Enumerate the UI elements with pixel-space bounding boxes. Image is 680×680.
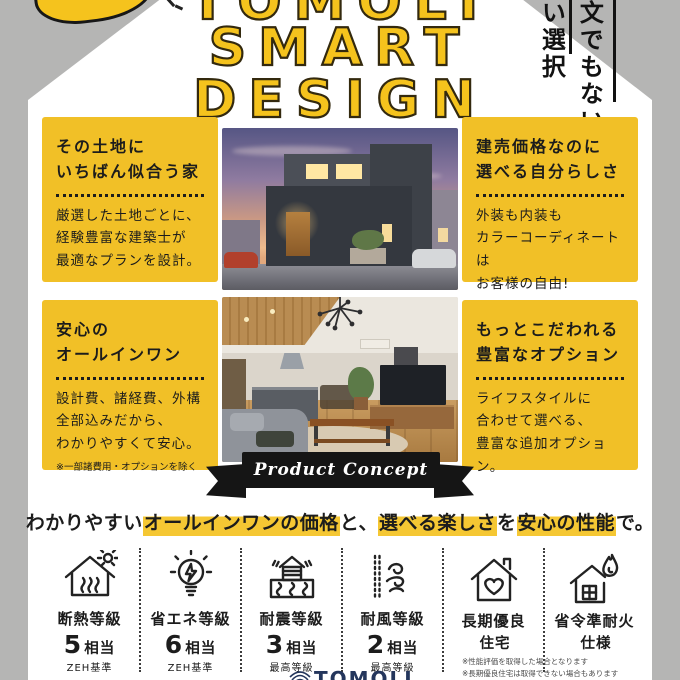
vertical-phrase-right: 文でもない — [576, 0, 602, 135]
flyer-poster: TOMOLI SMART DESIGN 文でもない い選択 その土地に いちばん… — [0, 0, 680, 680]
tagline: わかりやすいオールインワンの価格と、選べる楽しさを安心の性能で。 — [0, 508, 680, 535]
indoor-plant — [348, 367, 374, 401]
spec-label: 省エネ等級 — [150, 608, 230, 629]
feature-title-line: 豊富なオプション — [476, 343, 626, 368]
dotted-divider — [56, 377, 204, 380]
spec-energy: 省エネ等級 6 相当 ZEH基準 — [139, 548, 240, 672]
downlight — [244, 317, 249, 322]
spec-earthquake: 耐震等級 3 相当 最高等級 — [240, 548, 341, 672]
feature-body-line: 最適なプランを設計。 — [56, 250, 206, 273]
product-concept-ribbon: Product Concept — [242, 452, 440, 488]
spec-grade-unit: 相当 — [387, 637, 418, 658]
performance-specs-row: 断熱等級 5 相当 ZEH基準 省エネ等級 6 相当 ZEH基準 — [40, 548, 644, 672]
insulation-house-icon — [62, 550, 118, 606]
spec-grade-unit: 相当 — [84, 637, 115, 658]
feature-footnote: ※一部諸費用・オプションを除く — [56, 459, 206, 473]
wood-front-door — [286, 212, 310, 256]
tagline-segment: と、 — [340, 512, 378, 534]
sofa-cushion — [230, 413, 264, 431]
feature-body-line: 合わせて選べる、 — [476, 410, 626, 433]
spec-grade-unit: 相当 — [185, 637, 216, 658]
downlight — [270, 309, 275, 314]
heart-house-icon — [466, 550, 522, 608]
feature-title-line: もっとこだわれる — [476, 318, 626, 343]
feature-box-options: もっとこだわれる 豊富なオプション ライフスタイルに 合わせて選べる、 豊富な追… — [462, 300, 638, 470]
spec-grade-number: 2 — [367, 630, 384, 659]
exterior-photo — [222, 128, 458, 290]
energy-saving-bulb-icon — [163, 550, 219, 606]
spec-grade-number: 5 — [64, 630, 81, 659]
spec-label: 断熱等級 — [57, 608, 121, 629]
dotted-divider — [476, 377, 624, 380]
footnote-line: ※性能評価を取得した場合となります — [462, 656, 652, 668]
coffee-table-shelf — [314, 439, 390, 443]
spec-grade-unit: 仕様 — [581, 632, 612, 653]
feature-title-line: いちばん似合う家 — [56, 160, 206, 185]
spec-label: 耐震等級 — [259, 608, 323, 629]
feature-title-line: その土地に — [56, 135, 206, 160]
lit-window — [336, 164, 362, 179]
spec-grade-number: 3 — [266, 630, 283, 659]
dotted-divider — [476, 194, 624, 197]
vertical-phrase-left: い選択 — [538, 0, 564, 81]
earthquake-resistance-icon — [264, 550, 320, 606]
spec-grade-number: 6 — [165, 630, 182, 659]
spec-wind: 耐風等級 2 相当 最高等級 — [341, 548, 442, 672]
feature-box-all-in-one: 安心の オールインワン 設計費、諸経費、外構 全部込みだから、 わかりやすくて安… — [42, 300, 218, 470]
tagline-segment: わかりやすい — [26, 512, 143, 534]
red-car — [224, 252, 258, 268]
spec-grade-unit: 住宅 — [480, 632, 511, 653]
feature-body-line: お客様の自由! — [476, 273, 626, 296]
vertical-rule — [569, 0, 572, 54]
spec-grade-unit: 相当 — [286, 637, 317, 658]
feature-box-land-fit: その土地に いちばん似合う家 厳選した土地ごとに、 経験豊富な建築士が 最適なプ… — [42, 117, 218, 282]
tagline-segment: で。 — [616, 512, 654, 534]
sputnik-chandelier-icon — [308, 297, 372, 341]
feature-title-line: 安心の — [56, 318, 206, 343]
feature-body-line: 経験豊富な建築士が — [56, 227, 206, 250]
lit-window — [438, 228, 448, 242]
spec-note: ZEH基準 — [168, 659, 214, 674]
feature-body-line: 外装も内装も — [476, 205, 626, 228]
tagline-highlight: オールインワンの価格 — [143, 511, 340, 536]
range-hood — [280, 353, 304, 369]
interior-photo — [222, 297, 458, 462]
vertical-rule — [613, 0, 616, 102]
feature-title-line: 建売価格なのに — [476, 135, 626, 160]
spec-note: ZEH基準 — [67, 659, 113, 674]
spec-fireproof: 省令準耐火 仕様 — [543, 548, 644, 672]
tagline-highlight: 選べる楽しさ — [378, 511, 497, 536]
tagline-highlight: 安心の性能 — [517, 511, 617, 536]
footnote-line: ※長期優良住宅は取得できない場合もあります — [462, 668, 652, 680]
feature-title-line: 選べる自分らしさ — [476, 160, 626, 185]
spec-insulation: 断熱等級 5 相当 ZEH基準 — [40, 548, 139, 672]
coffee-table-leg — [314, 426, 318, 446]
ribbon-label: Product Concept — [254, 460, 429, 480]
throw-blanket — [256, 431, 294, 447]
feature-body-line: 厳選した土地ごとに、 — [56, 205, 206, 228]
feature-title-line: オールインワン — [56, 343, 206, 368]
coffee-table — [310, 419, 394, 426]
planter — [350, 248, 386, 264]
tagline-segment: を — [497, 512, 517, 534]
tomoli-logo-mark-icon — [288, 664, 312, 680]
spec-label: 省令準耐火 — [554, 610, 634, 631]
dotted-divider — [56, 194, 204, 197]
spec-label: 耐風等級 — [360, 608, 424, 629]
lit-window — [306, 164, 328, 179]
feature-body-line: 全部込みだから、 — [56, 410, 206, 433]
spec-long-life: 長期優良 住宅 — [442, 548, 543, 672]
fireproof-house-icon — [567, 550, 623, 608]
feature-body-line: 豊富な追加オプション。 — [476, 433, 626, 478]
wind-resistance-icon — [365, 550, 421, 606]
feature-box-customizable: 建売価格なのに 選べる自分らしさ 外装も内装も カラーコーディネートは お客様の… — [462, 117, 638, 282]
feature-body-line: 設計費、諸経費、外構 — [56, 388, 206, 411]
feature-body-line: ライフスタイルに — [476, 388, 626, 411]
feature-body-line: カラーコーディネートは — [476, 227, 626, 272]
white-car — [412, 249, 456, 268]
television — [380, 365, 446, 405]
tomoli-logo-text: TOMOLI — [314, 667, 414, 680]
feature-body-line: わかりやすくて安心。 — [56, 433, 206, 456]
spec-label: 長期優良 — [461, 610, 525, 631]
coffee-table-leg — [386, 426, 390, 446]
plant-pot — [354, 397, 368, 410]
